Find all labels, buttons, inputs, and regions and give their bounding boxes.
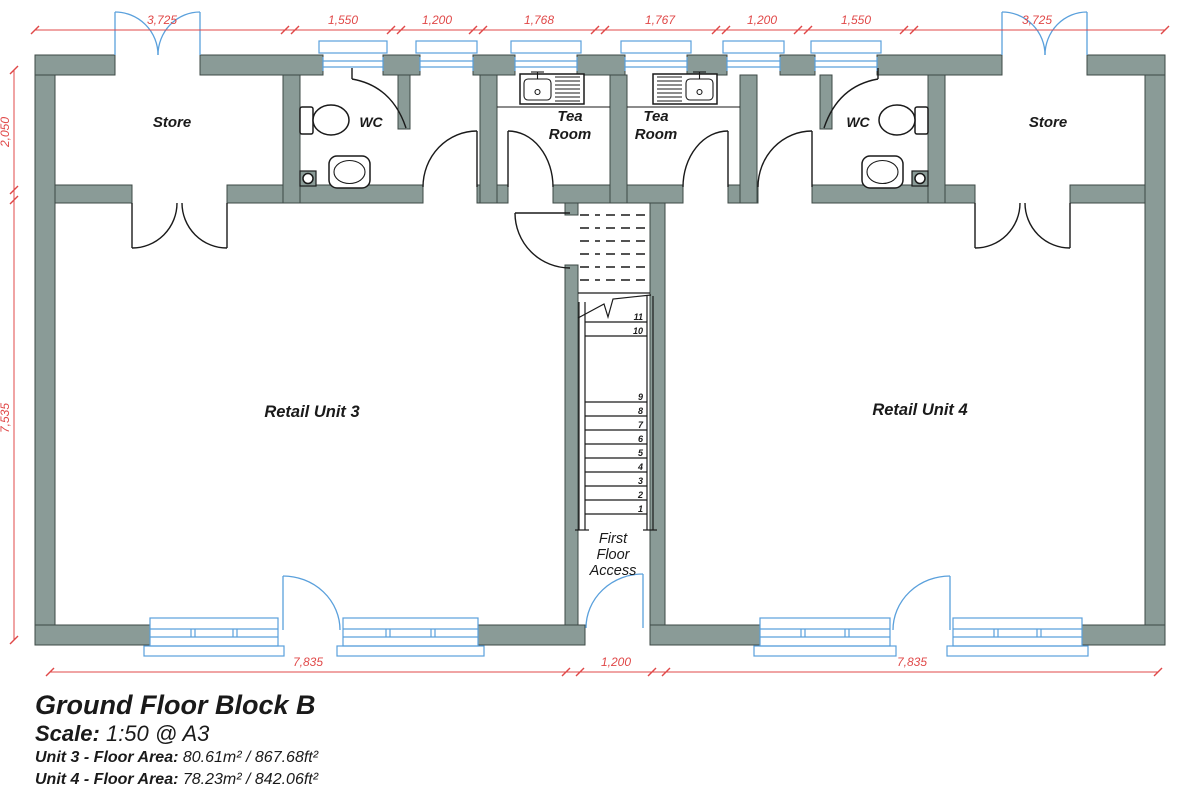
step-number: 6 [638, 434, 644, 444]
unit4-label: Unit 4 - Floor Area: [35, 771, 178, 788]
step-number: 10 [633, 326, 643, 336]
window [416, 41, 477, 71]
wc-right-label: WC [846, 114, 870, 130]
window [511, 41, 581, 71]
unit4-value: 78.23m² / 842.06ft² [183, 771, 318, 788]
unit3-value: 80.61m² / 867.68ft² [183, 749, 318, 766]
scale-value: 1:50 @ A3 [106, 721, 209, 746]
retail-unit-3-entrance-door [283, 576, 340, 630]
dimension-top: 3,725 1,550 1,200 1,768 1,767 1,200 1,55… [31, 13, 1169, 34]
floor-plan-page: 11 10 9 8 7 6 5 4 3 2 1 First Floor Acce… [0, 0, 1200, 798]
floor-drain-left-icon [300, 171, 316, 186]
stair-step-numbers: 11 10 9 8 7 6 5 4 3 2 1 [633, 312, 644, 514]
stair-landing-door [515, 213, 570, 268]
toilet-left-icon [300, 105, 349, 135]
toilet-right-icon [879, 105, 928, 135]
dimension-label: 3,725 [1022, 13, 1052, 27]
dimension-label: 1,768 [524, 13, 554, 27]
title-block: Ground Floor Block B Scale: 1:50 @ A3 Un… [35, 690, 318, 791]
step-number: 7 [638, 420, 644, 430]
step-number: 11 [634, 312, 643, 322]
tea-room-right-label: Tea [643, 108, 668, 125]
tea-room-left-label: Tea [557, 108, 582, 125]
dimension-label: 7,835 [897, 655, 927, 669]
basin-left-icon [329, 156, 370, 188]
wall-left [35, 55, 55, 645]
staircase: 11 10 9 8 7 6 5 4 3 2 1 First Floor Acce… [575, 215, 657, 579]
svg-text:First: First [599, 531, 628, 547]
tea-room-right-sink-icon [627, 72, 740, 107]
shopfront-panel [947, 618, 1088, 656]
tea-room-left-sink-icon [497, 72, 610, 107]
retail-unit-3-label: Retail Unit 3 [264, 403, 359, 421]
dimension-label: 1,200 [601, 655, 631, 669]
wc-lobby-left-door [423, 131, 477, 187]
dimension-label: 1,200 [422, 13, 452, 27]
tea-room-left-door [508, 131, 553, 187]
step-number: 2 [637, 490, 643, 500]
wc-left-label: WC [359, 114, 383, 130]
step-number: 8 [638, 406, 643, 416]
first-floor-access-label: First Floor Access [589, 531, 637, 579]
dimension-label: 7,535 [0, 403, 12, 433]
shopfront-panel [337, 618, 484, 656]
window [811, 41, 881, 71]
tea-room-right-label: Room [635, 126, 678, 143]
unit3-floor-area: Unit 3 - Floor Area: 80.61m² / 867.68ft² [35, 747, 318, 769]
shopfront-glazing [144, 618, 1088, 656]
shopfront-panel [144, 618, 284, 656]
dimension-label: 1,550 [328, 13, 358, 27]
svg-text:Floor: Floor [596, 547, 630, 563]
stair-flight [575, 295, 657, 530]
dimension-label: 1,200 [747, 13, 777, 27]
store-right-label: Store [1029, 114, 1067, 131]
step-number: 4 [637, 462, 643, 472]
window [723, 41, 784, 71]
window [621, 41, 691, 71]
first-floor-access-door [586, 574, 643, 628]
dimension-label: 3,725 [147, 13, 177, 27]
step-number: 9 [638, 392, 643, 402]
retail-unit-4-entrance-door [893, 576, 950, 630]
wall-right [1145, 55, 1165, 645]
step-number: 3 [638, 476, 643, 486]
dimension-left: 2,050 7,535 [0, 66, 18, 644]
dimension-label: 2,050 [0, 117, 12, 148]
shopfront-panel [754, 618, 896, 656]
basin-right-icon [862, 156, 903, 188]
floor-drain-right-icon [912, 171, 928, 186]
step-number: 5 [638, 448, 644, 458]
dimension-label: 1,550 [841, 13, 871, 27]
floor-plan-drawing: 11 10 9 8 7 6 5 4 3 2 1 First Floor Acce… [0, 0, 1200, 690]
store-left-label: Store [153, 114, 191, 131]
dimension-bottom: 7,835 1,200 7,835 [46, 655, 1162, 676]
unit4-floor-area: Unit 4 - Floor Area: 78.23m² / 842.06ft² [35, 769, 318, 791]
wc-lobby-right-door [758, 131, 812, 187]
store-right-internal-double-door [975, 203, 1070, 248]
dimension-label: 1,767 [645, 13, 676, 27]
drawing-title: Ground Floor Block B [35, 690, 318, 720]
scale-label: Scale: [35, 721, 100, 746]
drawing-scale: Scale: 1:50 @ A3 [35, 720, 318, 747]
window [319, 41, 387, 71]
store-left-internal-double-door [132, 203, 227, 248]
dimension-label: 7,835 [293, 655, 323, 669]
tea-room-left-label: Room [549, 126, 592, 143]
retail-unit-4-label: Retail Unit 4 [872, 401, 967, 419]
tea-room-right-door [683, 131, 728, 187]
stair-landing-treads [578, 215, 650, 293]
step-number: 1 [638, 504, 643, 514]
unit3-label: Unit 3 - Floor Area: [35, 749, 178, 766]
svg-text:Access: Access [589, 563, 637, 579]
